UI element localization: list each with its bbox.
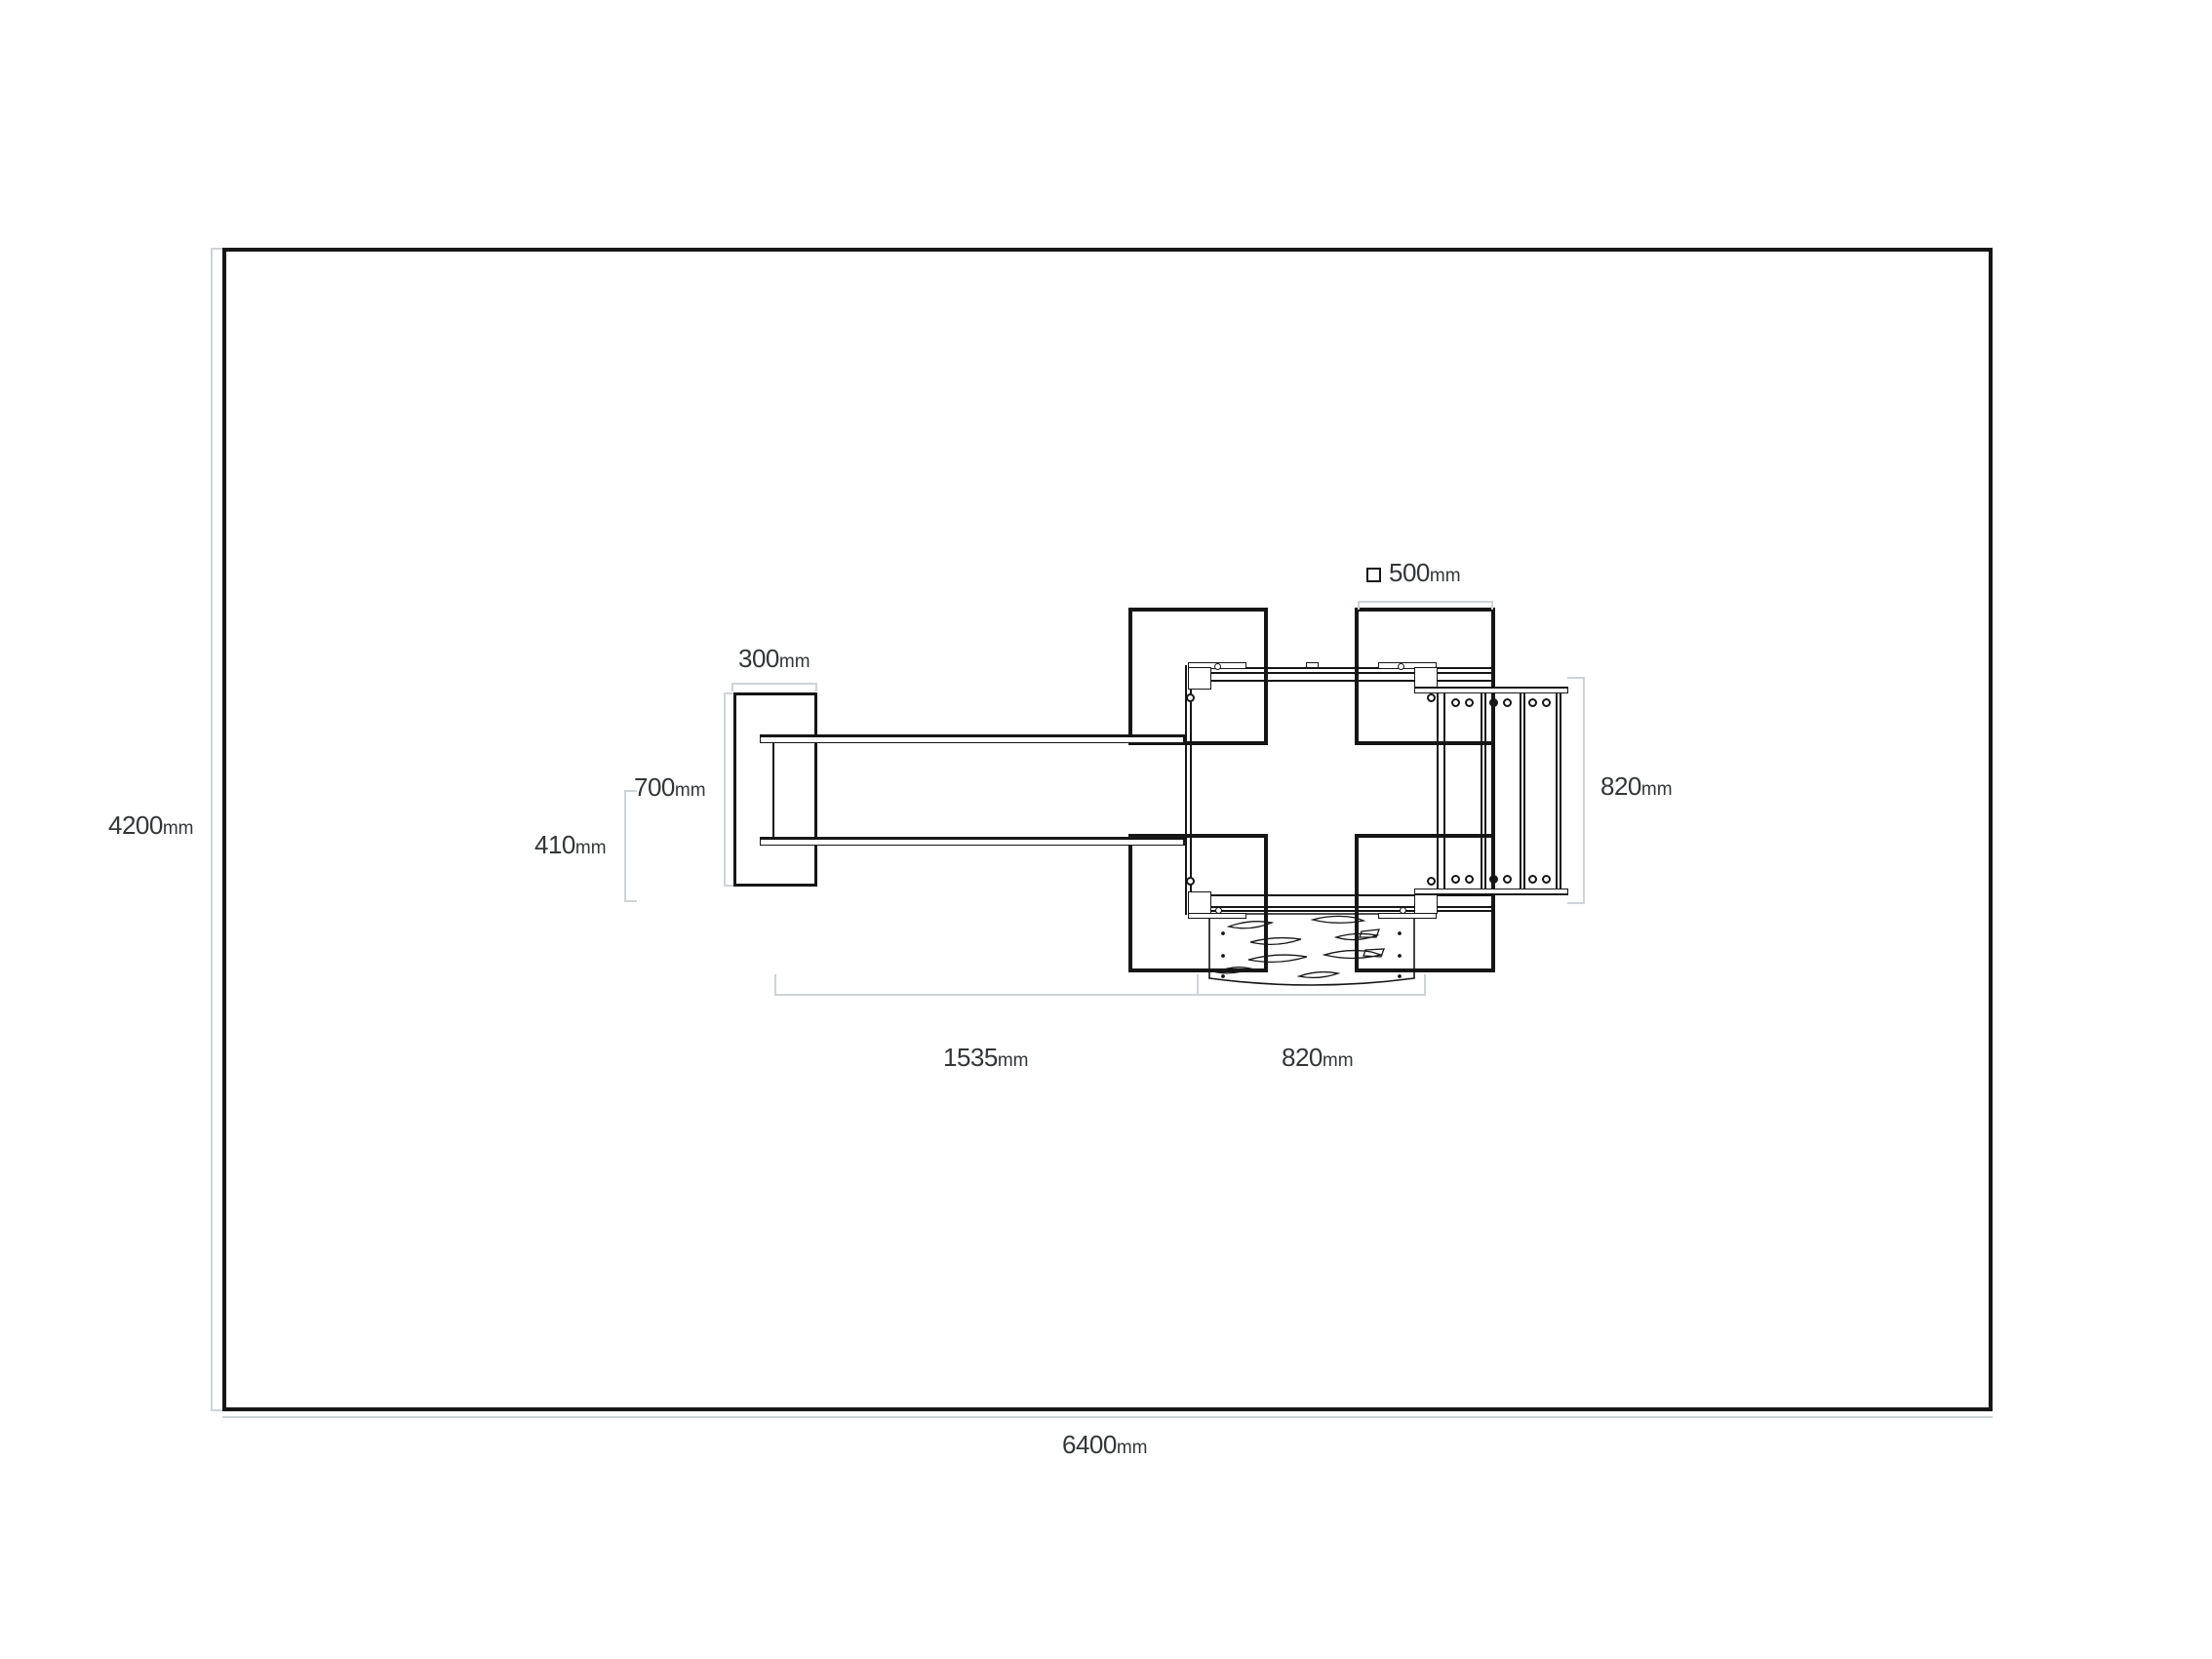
dimension-tick <box>1424 974 1426 996</box>
dimension-line <box>774 994 1426 996</box>
dim-label-fork-reach: 1535mm <box>943 1045 1029 1070</box>
dim-unit: mm <box>1323 1050 1354 1071</box>
dim-unit: mm <box>998 1050 1029 1071</box>
dimension-tick <box>774 974 776 996</box>
dim-label-pallet-width: 820mm <box>1282 1045 1354 1070</box>
dim-value: 820 <box>1282 1043 1323 1072</box>
technical-drawing-canvas: 4200mm 6400mm 300mm 700mm 410mm <box>0 0 2212 1659</box>
dimension-tick <box>1197 974 1199 996</box>
dim-value: 1535 <box>943 1043 998 1072</box>
reach-and-pallet-dimension: 1535mm 820mm <box>0 0 2212 1659</box>
